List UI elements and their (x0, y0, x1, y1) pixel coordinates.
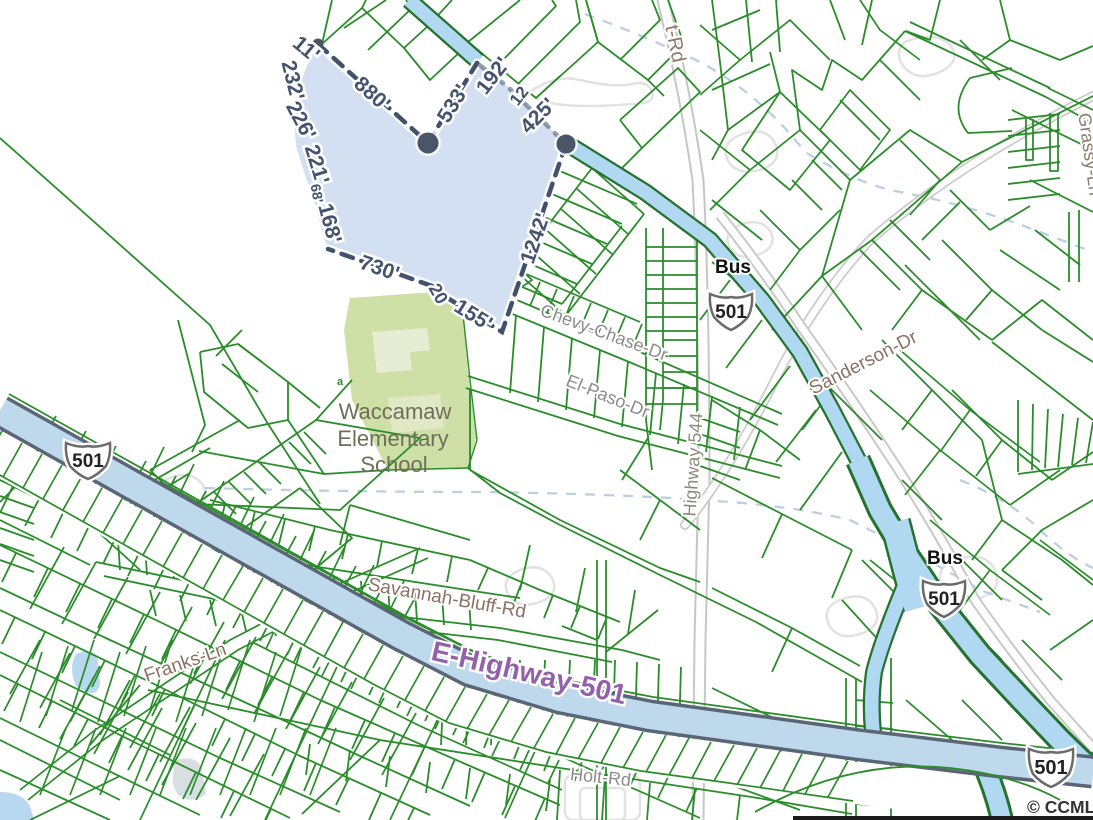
svg-text:Bus: Bus (927, 548, 963, 569)
svg-text:501: 501 (715, 302, 747, 323)
svg-text:501: 501 (1034, 757, 1067, 779)
svg-text:a: a (337, 376, 344, 388)
svg-text:501: 501 (72, 451, 104, 472)
svg-text:School: School (360, 452, 427, 477)
svg-text:Elementary: Elementary (337, 426, 448, 451)
svg-text:Waccamaw: Waccamaw (339, 399, 452, 424)
svg-text:Bus: Bus (715, 257, 751, 278)
svg-text:68': 68' (308, 183, 327, 204)
svg-text:501: 501 (928, 589, 960, 610)
svg-text:© CCMLS: © CCMLS (1027, 797, 1093, 817)
